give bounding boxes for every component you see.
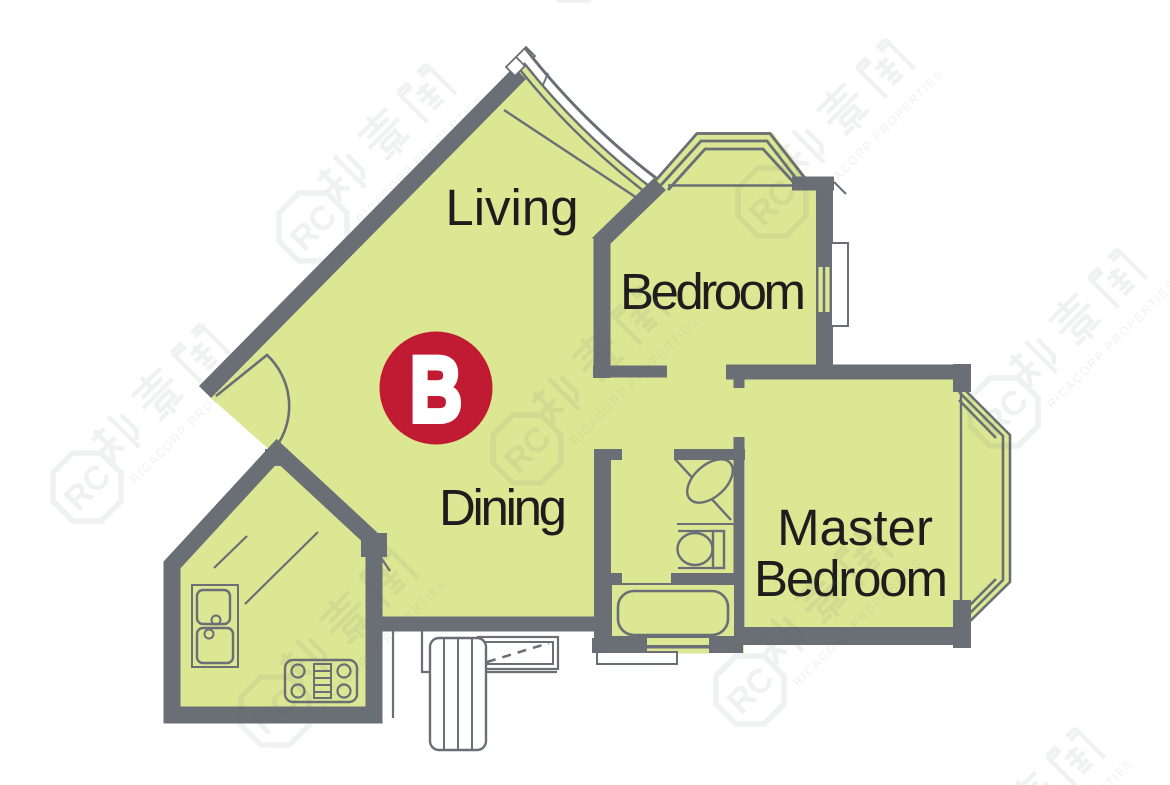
svg-text:Living: Living	[445, 179, 578, 236]
svg-text:B: B	[410, 338, 462, 441]
svg-text:Master: Master	[777, 499, 933, 556]
svg-text:Bedroom: Bedroom	[754, 550, 948, 607]
svg-text:Dining: Dining	[439, 479, 567, 536]
